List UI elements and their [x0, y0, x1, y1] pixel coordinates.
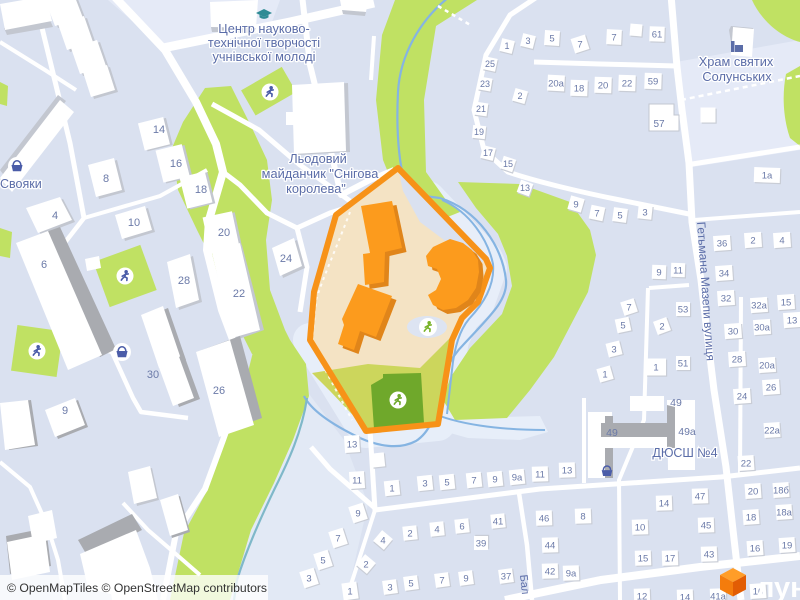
svg-text:2: 2 [517, 91, 522, 101]
svg-text:3: 3 [387, 582, 392, 593]
svg-text:9a: 9a [512, 472, 523, 483]
svg-text:5: 5 [444, 477, 449, 488]
svg-text:39: 39 [476, 538, 487, 549]
svg-text:17: 17 [665, 553, 676, 564]
svg-text:26: 26 [213, 385, 225, 397]
svg-text:лун: лун [756, 572, 800, 600]
svg-text:1: 1 [653, 362, 658, 373]
svg-text:20a: 20a [548, 78, 565, 89]
svg-text:7: 7 [471, 475, 476, 486]
svg-text:10: 10 [128, 217, 140, 229]
svg-text:36: 36 [717, 238, 728, 249]
svg-text:Центр науково-: Центр науково- [218, 21, 310, 36]
svg-text:46: 46 [539, 513, 550, 524]
svg-text:7: 7 [611, 32, 616, 43]
svg-text:9: 9 [656, 267, 661, 278]
svg-text:15: 15 [781, 297, 792, 308]
svg-text:19: 19 [782, 540, 793, 551]
svg-text:21: 21 [476, 104, 486, 114]
svg-text:24: 24 [737, 391, 748, 402]
svg-text:47: 47 [695, 491, 706, 502]
svg-text:8: 8 [580, 511, 585, 522]
svg-text:18: 18 [746, 512, 757, 523]
svg-text:14: 14 [680, 592, 691, 600]
svg-text:9: 9 [573, 199, 578, 210]
svg-text:32: 32 [721, 293, 732, 304]
svg-text:королева": королева" [286, 181, 346, 196]
svg-text:45: 45 [701, 520, 712, 531]
svg-text:18a: 18a [776, 507, 793, 518]
svg-text:18б: 18б [773, 485, 790, 496]
svg-text:22: 22 [233, 288, 245, 300]
svg-text:Бал: Бал [517, 574, 531, 595]
svg-text:6: 6 [41, 259, 47, 271]
svg-text:26: 26 [766, 382, 777, 393]
svg-text:1: 1 [389, 483, 394, 494]
svg-text:18: 18 [195, 184, 207, 196]
svg-text:20a: 20a [759, 360, 776, 371]
svg-text:15: 15 [638, 553, 649, 564]
svg-text:30: 30 [728, 326, 739, 337]
svg-text:15: 15 [503, 159, 513, 169]
svg-text:7: 7 [626, 302, 631, 313]
svg-text:5: 5 [549, 33, 554, 44]
svg-text:13: 13 [562, 465, 573, 476]
svg-text:2: 2 [407, 528, 412, 539]
svg-text:учнівської молоді: учнівської молоді [212, 49, 315, 64]
svg-text:9a: 9a [566, 568, 577, 579]
svg-text:1: 1 [347, 586, 352, 597]
svg-text:3: 3 [642, 207, 647, 218]
svg-text:5: 5 [620, 320, 625, 331]
svg-text:28: 28 [732, 354, 743, 365]
svg-text:11: 11 [535, 469, 545, 480]
svg-text:17: 17 [483, 148, 493, 158]
svg-text:5: 5 [408, 578, 413, 589]
svg-text:9: 9 [62, 405, 68, 417]
svg-text:34: 34 [719, 268, 730, 279]
svg-text:23: 23 [480, 79, 490, 89]
svg-text:3: 3 [306, 573, 311, 584]
svg-text:3: 3 [422, 478, 427, 489]
svg-text:10: 10 [635, 522, 646, 533]
svg-text:22: 22 [741, 458, 752, 469]
svg-text:4: 4 [434, 524, 439, 535]
svg-text:19: 19 [474, 127, 484, 137]
svg-text:ДЮСШ №4: ДЮСШ №4 [652, 446, 717, 460]
svg-text:32a: 32a [751, 300, 768, 311]
svg-text:11: 11 [673, 265, 683, 276]
svg-text:2: 2 [750, 235, 755, 246]
svg-text:Льодовий: Льодовий [289, 151, 347, 166]
svg-text:20: 20 [748, 486, 759, 497]
svg-text:3: 3 [611, 344, 616, 355]
svg-text:5: 5 [617, 210, 622, 221]
svg-text:49: 49 [670, 397, 682, 409]
svg-text:61: 61 [652, 29, 663, 40]
svg-text:18: 18 [574, 83, 585, 94]
svg-text:7: 7 [335, 533, 340, 544]
svg-text:4: 4 [52, 210, 58, 222]
svg-text:5: 5 [320, 555, 325, 566]
svg-text:20: 20 [218, 227, 230, 239]
svg-text:9: 9 [355, 508, 360, 519]
svg-text:9: 9 [463, 573, 468, 584]
svg-text:9: 9 [492, 474, 497, 485]
svg-text:49: 49 [606, 427, 618, 439]
svg-text:7: 7 [577, 39, 582, 50]
svg-text:7: 7 [439, 575, 444, 586]
svg-text:30a: 30a [754, 322, 771, 333]
svg-text:44: 44 [545, 540, 556, 551]
svg-text:8: 8 [103, 173, 109, 185]
svg-text:майданчик "Снігова: майданчик "Снігова [262, 166, 380, 181]
svg-text:16: 16 [750, 543, 761, 554]
svg-text:Свояки: Свояки [0, 177, 42, 191]
svg-text:42: 42 [545, 566, 556, 577]
svg-text:12: 12 [637, 591, 648, 600]
svg-text:2: 2 [659, 321, 664, 332]
svg-text:28: 28 [178, 275, 190, 287]
svg-text:1a: 1a [762, 170, 773, 181]
svg-text:7: 7 [594, 208, 599, 219]
svg-text:© OpenMapTiles © OpenStreetMap: © OpenMapTiles © OpenStreetMap contribut… [7, 581, 267, 595]
svg-text:3: 3 [525, 36, 530, 46]
svg-text:1: 1 [504, 41, 509, 51]
svg-text:43: 43 [704, 549, 715, 560]
svg-text:13: 13 [347, 439, 358, 450]
svg-text:53: 53 [678, 304, 689, 315]
svg-text:49a: 49a [678, 426, 696, 438]
svg-text:51: 51 [678, 358, 689, 369]
svg-text:4: 4 [779, 235, 784, 246]
svg-text:37: 37 [501, 571, 512, 582]
svg-text:57: 57 [653, 119, 665, 130]
svg-text:технічної творчості: технічної творчості [208, 35, 320, 50]
svg-text:22a: 22a [764, 425, 781, 436]
svg-text:13: 13 [787, 315, 798, 326]
svg-text:Храм святих: Храм святих [699, 54, 774, 69]
svg-text:2: 2 [363, 559, 368, 570]
svg-text:16: 16 [170, 158, 182, 170]
svg-text:24: 24 [280, 253, 292, 265]
svg-text:6: 6 [459, 521, 464, 532]
svg-text:13: 13 [520, 183, 530, 193]
svg-text:11: 11 [352, 475, 362, 486]
svg-text:25: 25 [485, 59, 495, 69]
svg-text:14: 14 [659, 498, 670, 509]
svg-text:1: 1 [602, 369, 607, 380]
svg-text:20: 20 [598, 80, 609, 91]
svg-text:30: 30 [147, 369, 159, 381]
svg-text:41a: 41a [710, 591, 727, 600]
svg-text:Солунських: Солунських [702, 69, 772, 84]
svg-text:59: 59 [648, 76, 659, 87]
svg-text:4: 4 [380, 535, 385, 546]
svg-text:41: 41 [493, 516, 504, 527]
svg-text:14: 14 [153, 124, 165, 136]
svg-text:22: 22 [622, 78, 633, 89]
